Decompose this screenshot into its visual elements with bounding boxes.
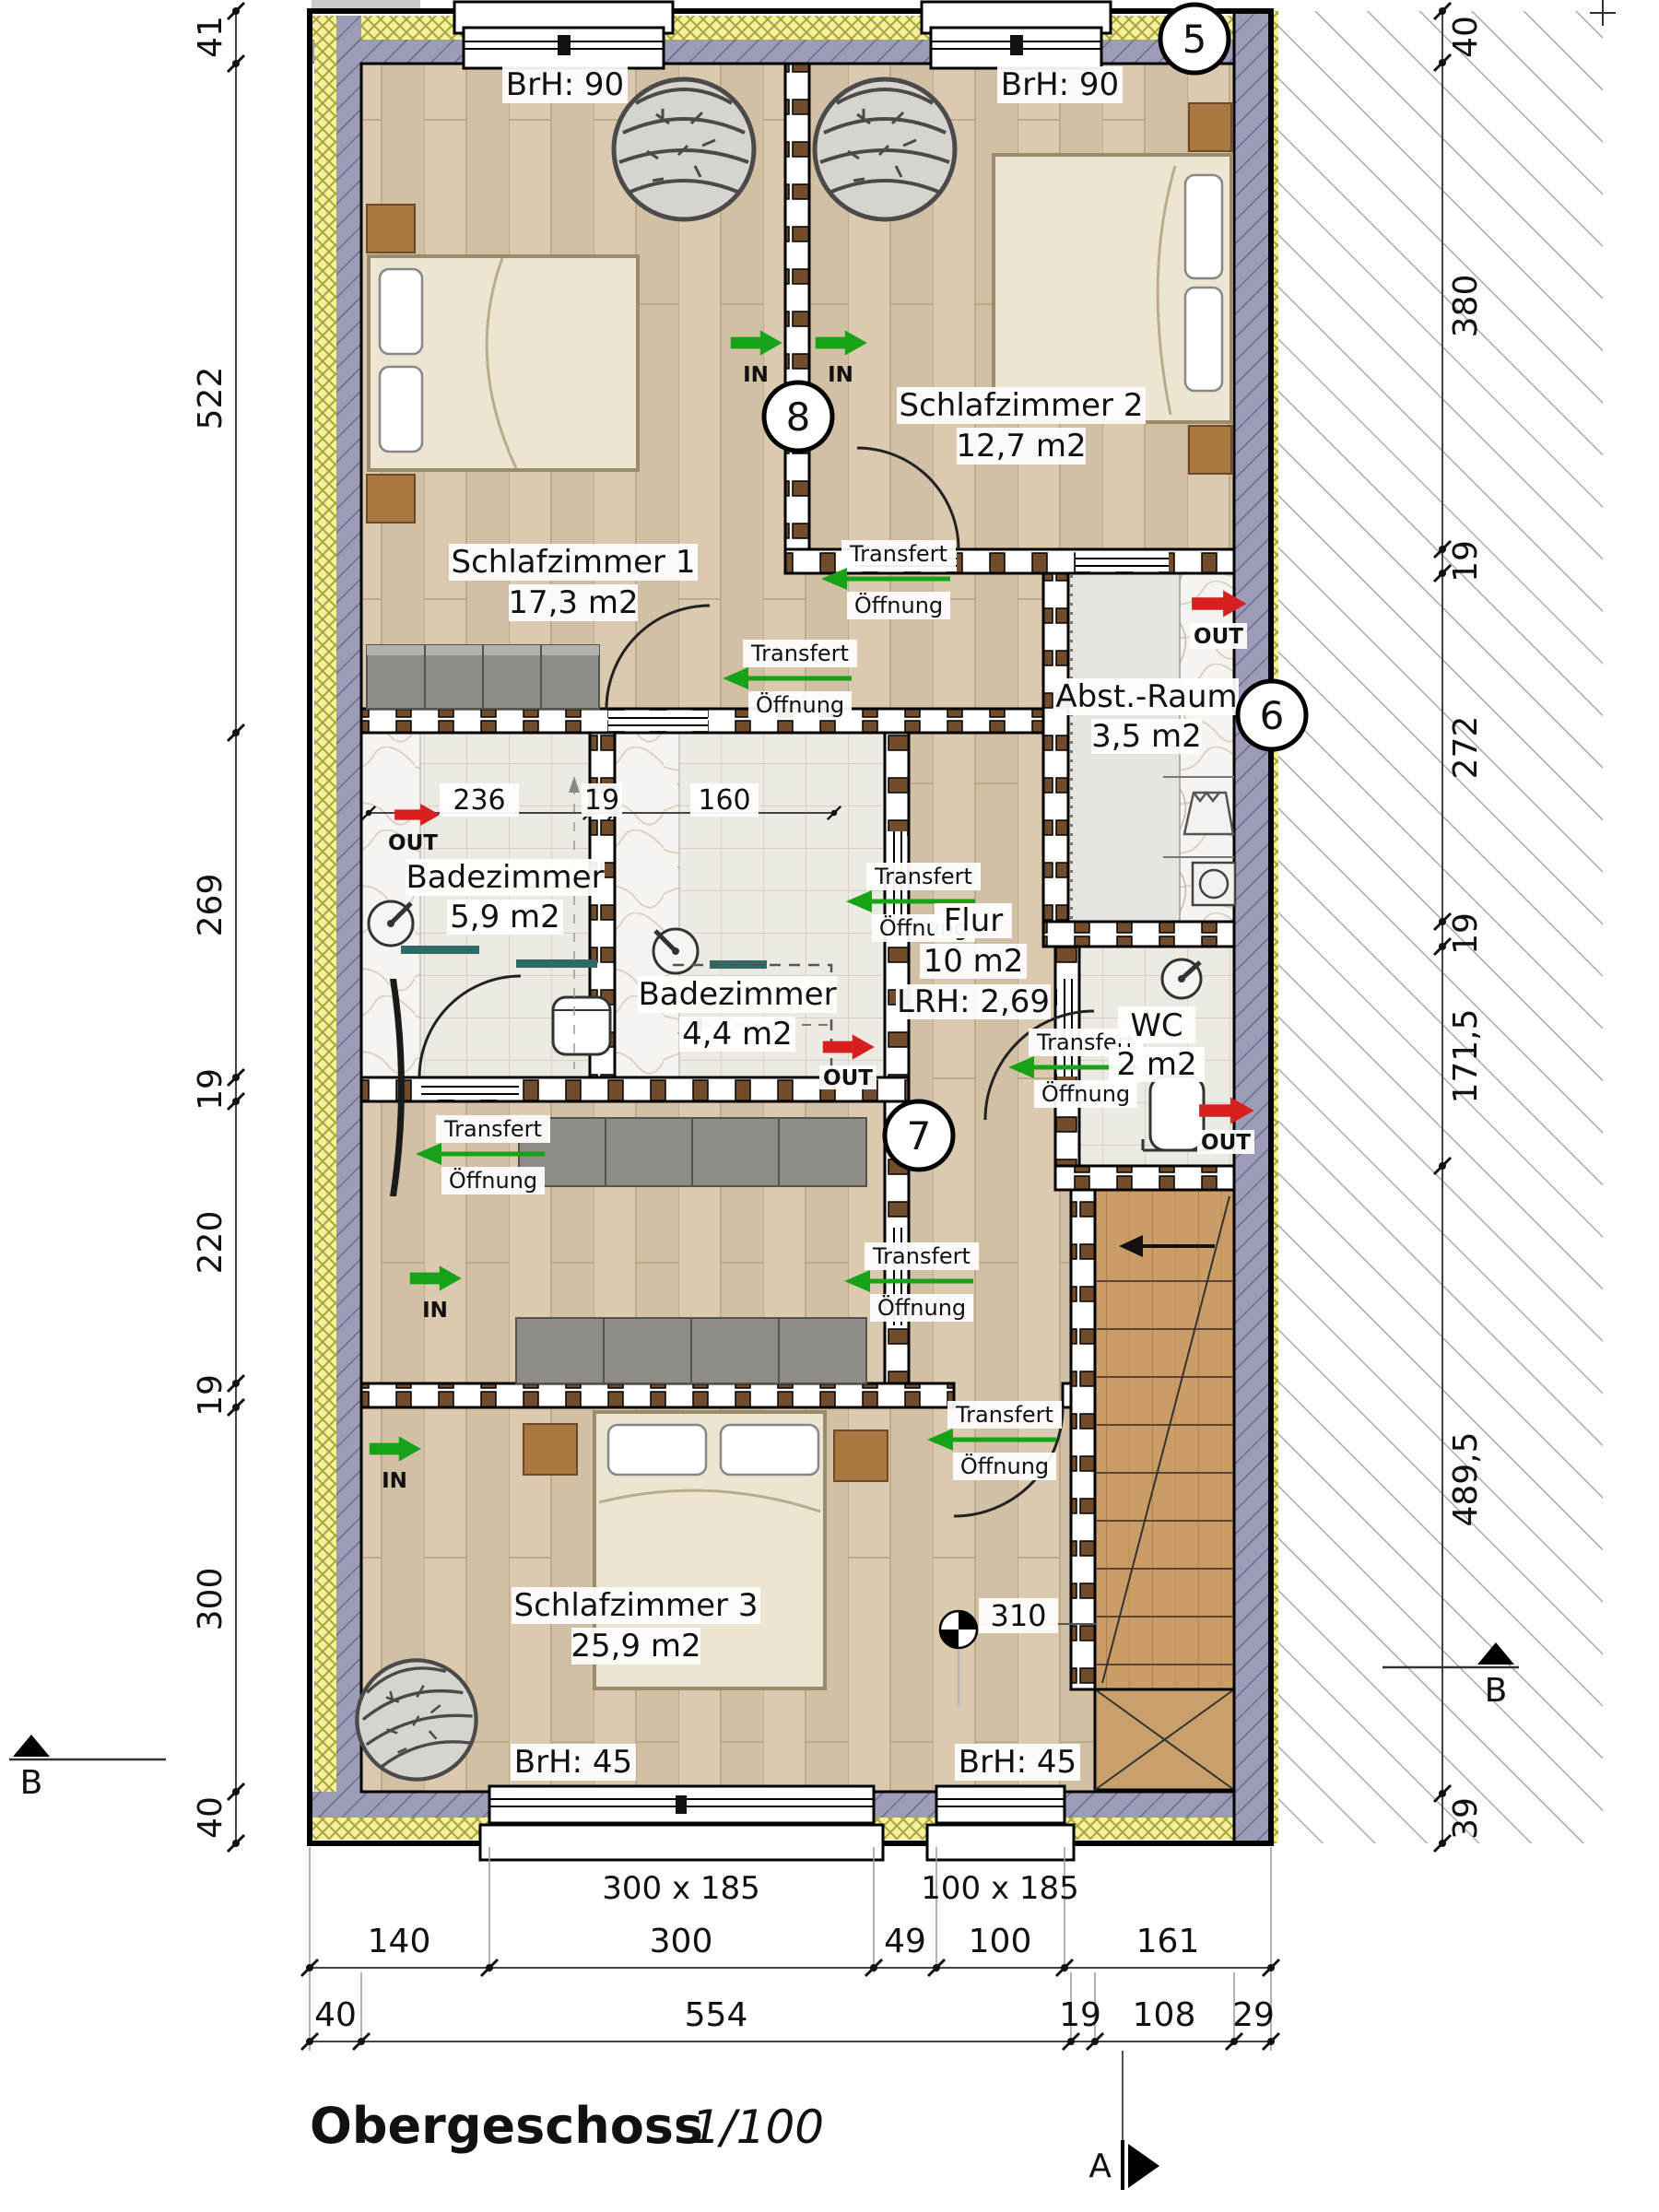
nightstand bbox=[834, 1430, 888, 1481]
svg-text:7: 7 bbox=[907, 1113, 932, 1159]
window-top-1 bbox=[454, 2, 673, 68]
floor-plan-drawing: 236 19 160 IN IN IN IN OUT OUT OUT OUT T… bbox=[0, 0, 1659, 2207]
svg-text:6: 6 bbox=[1260, 693, 1285, 738]
svg-text:380: 380 bbox=[1447, 275, 1485, 338]
room-label-bad2: Badezimmer bbox=[638, 976, 836, 1013]
plan-scale: 1/100 bbox=[691, 2100, 824, 2154]
vanity bbox=[401, 946, 479, 954]
svg-text:100: 100 bbox=[969, 1923, 1032, 1960]
svg-text:49: 49 bbox=[884, 1923, 926, 1960]
svg-text:161: 161 bbox=[1136, 1923, 1200, 1960]
in-label: IN bbox=[382, 1469, 407, 1493]
svg-text:B: B bbox=[1485, 1672, 1508, 1710]
stairs-floor bbox=[1095, 1190, 1234, 1689]
svg-text:Öffnung: Öffnung bbox=[756, 691, 844, 718]
shower-bath1 bbox=[369, 901, 413, 946]
svg-text:29: 29 bbox=[1232, 1996, 1275, 2034]
svg-text:220: 220 bbox=[192, 1211, 229, 1275]
svg-text:19: 19 bbox=[192, 1374, 229, 1417]
bath2-marble bbox=[615, 733, 679, 1077]
svg-text:269: 269 bbox=[192, 874, 229, 937]
marker-circle-8: 8 bbox=[764, 382, 832, 451]
bed-sz2 bbox=[994, 155, 1231, 422]
svg-text:19: 19 bbox=[1059, 1996, 1101, 2034]
window-bottom-100 bbox=[927, 1786, 1074, 1860]
stair-bottom-door bbox=[1095, 1689, 1234, 1790]
shower-wc bbox=[1162, 959, 1201, 998]
svg-text:Transfert: Transfert bbox=[874, 864, 972, 889]
brh45-left: BrH: 45 bbox=[514, 1744, 632, 1781]
svg-text:40: 40 bbox=[314, 1996, 357, 2034]
svg-text:40: 40 bbox=[1447, 16, 1485, 58]
marker-circle-6: 6 bbox=[1238, 681, 1306, 749]
wardrobe-row-1 bbox=[519, 1118, 866, 1186]
svg-text:Öffnung: Öffnung bbox=[854, 592, 943, 618]
svg-text:19: 19 bbox=[192, 1068, 229, 1111]
svg-text:Transfert: Transfert bbox=[750, 641, 849, 666]
bed-sz1 bbox=[369, 256, 638, 470]
svg-text:Transfert: Transfert bbox=[443, 1116, 542, 1142]
plan-title: Obergeschoss bbox=[310, 2097, 703, 2155]
nightstand bbox=[524, 1424, 577, 1475]
room-area-sz2: 12,7 m2 bbox=[956, 428, 1086, 465]
svg-text:A: A bbox=[1088, 2147, 1112, 2185]
svg-text:41: 41 bbox=[192, 16, 229, 58]
hanging-chair bbox=[815, 79, 955, 219]
svg-text:40: 40 bbox=[192, 1796, 229, 1839]
out-label: OUT bbox=[388, 831, 438, 855]
dim-bath-19: 19 bbox=[584, 784, 619, 817]
room-lrh-flur: LRH: 2,69 bbox=[897, 983, 1050, 1020]
room-area-wc: 2 m2 bbox=[1116, 1046, 1196, 1083]
nightstand bbox=[367, 205, 415, 253]
room-label-abst: Abst.-Raum bbox=[1055, 678, 1237, 715]
svg-text:140: 140 bbox=[368, 1923, 431, 1960]
point-310-label: 310 bbox=[990, 1598, 1046, 1633]
nightstand bbox=[1189, 426, 1231, 474]
washer bbox=[1193, 863, 1235, 905]
room-area-sz1: 17,3 m2 bbox=[508, 584, 638, 621]
svg-text:300: 300 bbox=[192, 1568, 229, 1631]
svg-text:108: 108 bbox=[1133, 1996, 1196, 2034]
room-label-sz1: Schlafzimmer 1 bbox=[452, 544, 696, 581]
marker-circle-5: 5 bbox=[1160, 5, 1229, 73]
room-label-wc: WC bbox=[1130, 1007, 1182, 1044]
svg-text:Öffnung: Öffnung bbox=[960, 1453, 1049, 1479]
svg-text:19: 19 bbox=[1447, 912, 1485, 955]
vanity bbox=[516, 959, 597, 968]
svg-text:554: 554 bbox=[685, 1996, 748, 2034]
wardrobe-row-2 bbox=[516, 1318, 866, 1383]
toilet-bath1 bbox=[553, 997, 610, 1054]
hanging-chair bbox=[614, 79, 754, 219]
laundry-basket bbox=[1184, 793, 1233, 834]
nightstand bbox=[1189, 103, 1231, 151]
floor-plan-page: 236 19 160 IN IN IN IN OUT OUT OUT OUT T… bbox=[0, 0, 1659, 2207]
out-label: OUT bbox=[1201, 1131, 1251, 1155]
room-label-flur: Flur bbox=[944, 902, 1004, 939]
room-label-bad1: Badezimmer bbox=[406, 859, 604, 896]
in-label: IN bbox=[743, 363, 769, 387]
room-area-bad2: 4,4 m2 bbox=[682, 1016, 793, 1053]
room-label-sz2: Schlafzimmer 2 bbox=[900, 387, 1144, 424]
svg-text:19: 19 bbox=[1447, 540, 1485, 582]
dim-bath-236: 236 bbox=[453, 784, 505, 817]
wardrobe-sz1 bbox=[367, 645, 599, 709]
room-label-sz3: Schlafzimmer 3 bbox=[514, 1587, 759, 1624]
room-area-bad1: 5,9 m2 bbox=[450, 899, 560, 935]
marker-circle-7: 7 bbox=[885, 1101, 953, 1170]
svg-text:Transfert: Transfert bbox=[872, 1243, 971, 1269]
out-label: OUT bbox=[1194, 625, 1243, 649]
svg-text:489,5: 489,5 bbox=[1447, 1431, 1485, 1526]
svg-text:39: 39 bbox=[1447, 1797, 1485, 1840]
svg-text:Transfert: Transfert bbox=[955, 1402, 1053, 1428]
svg-text:300: 300 bbox=[650, 1923, 713, 1960]
window-size-300: 300 x 185 bbox=[602, 1870, 760, 1907]
dim-bath-160: 160 bbox=[698, 784, 750, 817]
brh90-right: BrH: 90 bbox=[1001, 66, 1119, 103]
shower-bath2 bbox=[653, 929, 698, 973]
party-wall bbox=[1234, 11, 1271, 1843]
in-label: IN bbox=[828, 363, 853, 387]
brh90-left: BrH: 90 bbox=[506, 66, 624, 103]
svg-text:Öffnung: Öffnung bbox=[449, 1167, 537, 1194]
room-area-sz3: 25,9 m2 bbox=[571, 1628, 700, 1665]
svg-text:171,5: 171,5 bbox=[1447, 1008, 1485, 1103]
out-label: OUT bbox=[823, 1066, 873, 1090]
room-area-flur: 10 m2 bbox=[924, 943, 1024, 980]
svg-text:Öffnung: Öffnung bbox=[877, 1294, 966, 1321]
svg-text:Öffnung: Öffnung bbox=[1041, 1080, 1130, 1107]
svg-text:5: 5 bbox=[1182, 17, 1207, 62]
svg-text:272: 272 bbox=[1447, 716, 1485, 780]
window-bottom-300 bbox=[480, 1786, 883, 1860]
nightstand bbox=[367, 475, 415, 523]
svg-text:8: 8 bbox=[786, 394, 811, 440]
window-size-100: 100 x 185 bbox=[921, 1870, 1079, 1907]
svg-text:B: B bbox=[20, 1764, 43, 1802]
in-label: IN bbox=[422, 1299, 448, 1323]
svg-text:522: 522 bbox=[192, 367, 229, 430]
brh45-right: BrH: 45 bbox=[959, 1744, 1077, 1781]
window-top-2 bbox=[922, 2, 1111, 68]
room-area-abst: 3,5 m2 bbox=[1091, 718, 1202, 755]
title-block: Obergeschoss 1/100 bbox=[310, 2097, 824, 2155]
svg-text:Transfert: Transfert bbox=[849, 541, 947, 567]
